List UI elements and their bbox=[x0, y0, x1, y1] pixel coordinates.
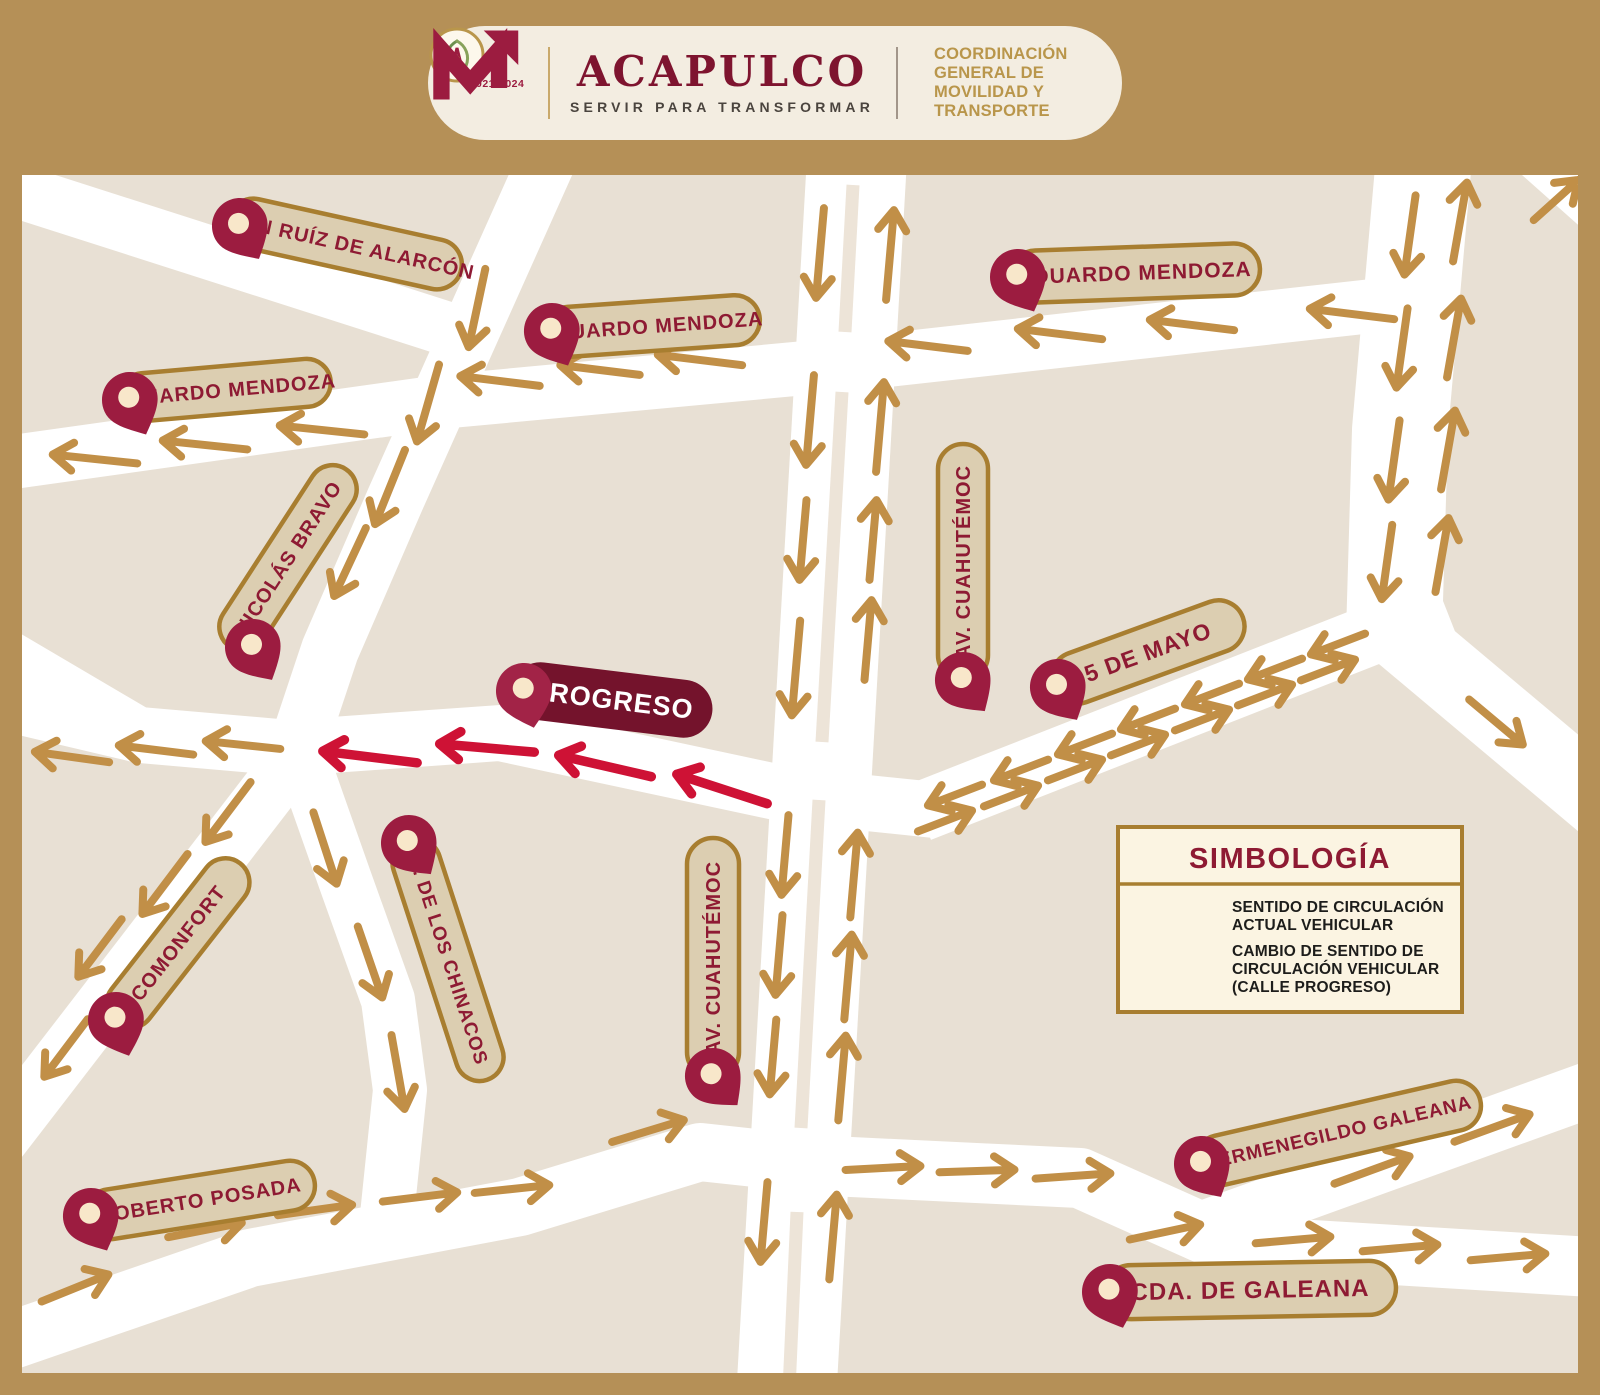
street-label-cda-de-galeana: CDA. DE GALEANA bbox=[1104, 1260, 1397, 1319]
legend-item-text: CAMBIO DE SENTIDO DE bbox=[1232, 943, 1424, 960]
street-label-av-cuahutemoc-south: AV. CUAHUTÉMOC bbox=[687, 838, 739, 1078]
legend-item-text: CIRCULACIÓN VEHICULAR bbox=[1232, 960, 1439, 978]
infographic-root: 2021-2024 ACAPULCO SERVIR PARA TRANSFORM… bbox=[0, 0, 1600, 1395]
svg-text:CDA. DE GALEANA: CDA. DE GALEANA bbox=[1130, 1275, 1369, 1306]
legend-title: SIMBOLOGÍA bbox=[1189, 841, 1391, 875]
agency-name: COORDINACIÓN GENERAL DE MOVILIDAD Y TRAN… bbox=[934, 45, 1067, 120]
street-label-av-cuahutemoc-north: AV. CUAHUTÉMOC bbox=[938, 444, 988, 680]
movilidad-logo-icon bbox=[428, 26, 524, 104]
brand-tagline: SERVIR PARA TRANSFORMAR bbox=[570, 99, 874, 115]
header-divider-1 bbox=[548, 47, 550, 119]
street-label-eduardo-mendoza-east: EDUARDO MENDOZA bbox=[1009, 243, 1261, 304]
legend-item-text: ACTUAL VEHICULAR bbox=[1232, 917, 1393, 934]
legend: SIMBOLOGÍA SENTIDO DE CIRCULACIÓN ACTUAL… bbox=[1118, 827, 1462, 1012]
header-divider-2 bbox=[896, 47, 898, 119]
legend-item-text: (CALLE PROGRESO) bbox=[1232, 979, 1391, 996]
agency-line: MOVILIDAD Y bbox=[934, 83, 1067, 102]
svg-text:AV. CUAHUTÉMOC: AV. CUAHUTÉMOC bbox=[702, 861, 725, 1055]
svg-text:AV. CUAHUTÉMOC: AV. CUAHUTÉMOC bbox=[952, 465, 975, 659]
legend-item-text: SENTIDO DE CIRCULACIÓN bbox=[1232, 898, 1444, 916]
agency-line: TRANSPORTE bbox=[934, 102, 1067, 121]
agency-line: GENERAL DE bbox=[934, 64, 1067, 83]
agency-line: COORDINACIÓN bbox=[934, 45, 1067, 64]
brand-wordmark: ACAPULCO bbox=[577, 51, 867, 93]
street-map: JUAN RUÍZ DE ALARCÓN EDUARDO MENDOZA EDU… bbox=[0, 0, 1600, 1395]
header: 2021-2024 ACAPULCO SERVIR PARA TRANSFORM… bbox=[428, 26, 1122, 140]
